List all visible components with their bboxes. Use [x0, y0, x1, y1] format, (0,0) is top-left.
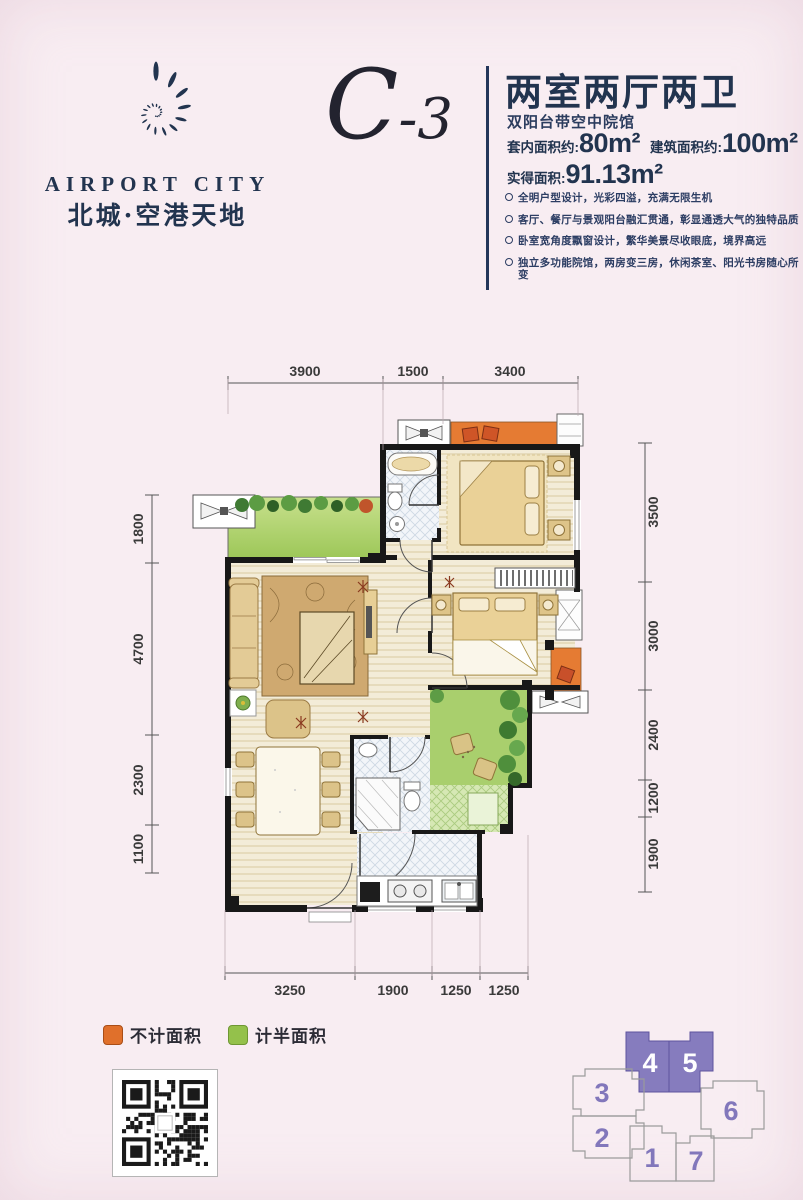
svg-text:1800: 1800: [130, 513, 146, 544]
svg-text:3500: 3500: [645, 496, 661, 527]
side-table-plant-icon: [230, 690, 256, 716]
area-inner-value: 80m²: [579, 128, 640, 159]
shower-icon: [356, 778, 400, 830]
dining-table-icon: [236, 747, 340, 835]
building-key-plan: 4 5 3 2 6 1 7: [548, 1012, 793, 1192]
area-build-value: 100m²: [722, 128, 798, 159]
brand-name-en: AIRPORT CITY: [30, 172, 285, 197]
area-actual-value: 91.13m²: [566, 159, 663, 190]
svg-text:2: 2: [594, 1123, 609, 1153]
unit-code: C-3: [294, 50, 484, 180]
toilet-icon: [388, 484, 402, 510]
svg-text:3000: 3000: [645, 620, 661, 651]
brand-name-cn: 北城·空港天地: [30, 196, 285, 232]
hallway: [383, 540, 430, 740]
bullet-ring-icon: [505, 215, 513, 223]
svg-text:1900: 1900: [645, 838, 661, 869]
armchair-icon: [266, 700, 310, 738]
legend-green-swatch-icon: [228, 1025, 248, 1045]
sofa-icon: [229, 578, 259, 688]
wardrobe-icon: [495, 568, 575, 588]
area-build-label: 建筑面积约:: [650, 136, 722, 156]
bay-window-top-icon: [557, 414, 583, 446]
legend-not-counted: 不计面积: [103, 1022, 202, 1047]
svg-text:4700: 4700: [130, 633, 146, 664]
tv-cabinet-icon: [364, 590, 377, 654]
svg-text:3400: 3400: [494, 363, 525, 379]
bullet-ring-icon: [505, 236, 513, 244]
multiroom-cabinet-icon: [468, 793, 498, 825]
legend-half-counted: 计半面积: [228, 1022, 327, 1047]
unit-code-main: C: [325, 50, 398, 160]
feature-item: 客厅、餐厅与景观阳台融汇贯通，彰显通透大气的独特品质: [505, 214, 801, 227]
svg-text:1250: 1250: [488, 982, 519, 998]
header-divider: [486, 66, 489, 290]
feature-item: 独立多功能院馆，两房变三房，休闲茶室、阳光书房随心所变: [505, 257, 801, 282]
svg-text:1200: 1200: [645, 782, 661, 813]
svg-text:1500: 1500: [397, 363, 428, 379]
bay-window-right-icon: [556, 590, 582, 640]
bullet-ring-icon: [505, 258, 513, 266]
legend-orange-swatch-icon: [103, 1025, 123, 1045]
bathtub-icon: [388, 453, 437, 475]
area-figures: 套内面积约: 80m² 建筑面积约: 100m² 实得面积: 91.13m²: [507, 128, 803, 190]
sink-icon: [390, 517, 405, 532]
svg-text:3900: 3900: [289, 363, 320, 379]
svg-text:1: 1: [644, 1143, 659, 1173]
svg-text:1100: 1100: [130, 834, 146, 865]
ac-platform-right-icon: [532, 691, 588, 713]
page-title: 两室两厅两卫: [505, 62, 739, 116]
svg-text:5: 5: [682, 1048, 697, 1078]
feature-list: 全明户型设计，光彩四溢，充满无限生机 客厅、餐厅与景观阳台融汇贯通，彰显通透大气…: [505, 192, 801, 291]
sink2-icon: [359, 743, 377, 757]
svg-text:3250: 3250: [274, 982, 305, 998]
legend: 不计面积 计半面积: [103, 1022, 327, 1047]
svg-text:7: 7: [688, 1146, 703, 1176]
qr-code: [112, 1069, 218, 1177]
kitchen-counter-icon: [357, 876, 477, 906]
svg-text:1900: 1900: [377, 982, 408, 998]
brand-spiral-logo: [96, 54, 216, 172]
floor-plan: 3900 1500 3400 1800 4700 2300 1100 3500 …: [90, 350, 710, 1010]
svg-text:2400: 2400: [645, 719, 661, 750]
coffee-table-icon: [300, 612, 354, 684]
bullet-ring-icon: [505, 193, 513, 201]
feature-item: 卧室宽角度飘窗设计，繁华美景尽收眼底，境界高远: [505, 235, 801, 248]
svg-text:1250: 1250: [440, 982, 471, 998]
ac-platform-top-icon: [398, 420, 450, 446]
svg-text:6: 6: [723, 1096, 738, 1126]
qr-pattern-icon: [122, 1080, 208, 1166]
svg-text:4: 4: [642, 1048, 657, 1078]
feature-item: 全明户型设计，光彩四溢，充满无限生机: [505, 192, 801, 205]
flyer-page: AIRPORT CITY 北城·空港天地 C-3 两室两厅两卫 双阳台带空中院馆…: [0, 0, 803, 1200]
svg-text:3: 3: [594, 1078, 609, 1108]
area-inner-label: 套内面积约:: [507, 136, 579, 156]
toilet2-icon: [404, 782, 420, 811]
unit-code-suffix: -3: [398, 87, 453, 152]
area-actual-label: 实得面积:: [507, 167, 566, 187]
svg-text:2300: 2300: [130, 764, 146, 795]
